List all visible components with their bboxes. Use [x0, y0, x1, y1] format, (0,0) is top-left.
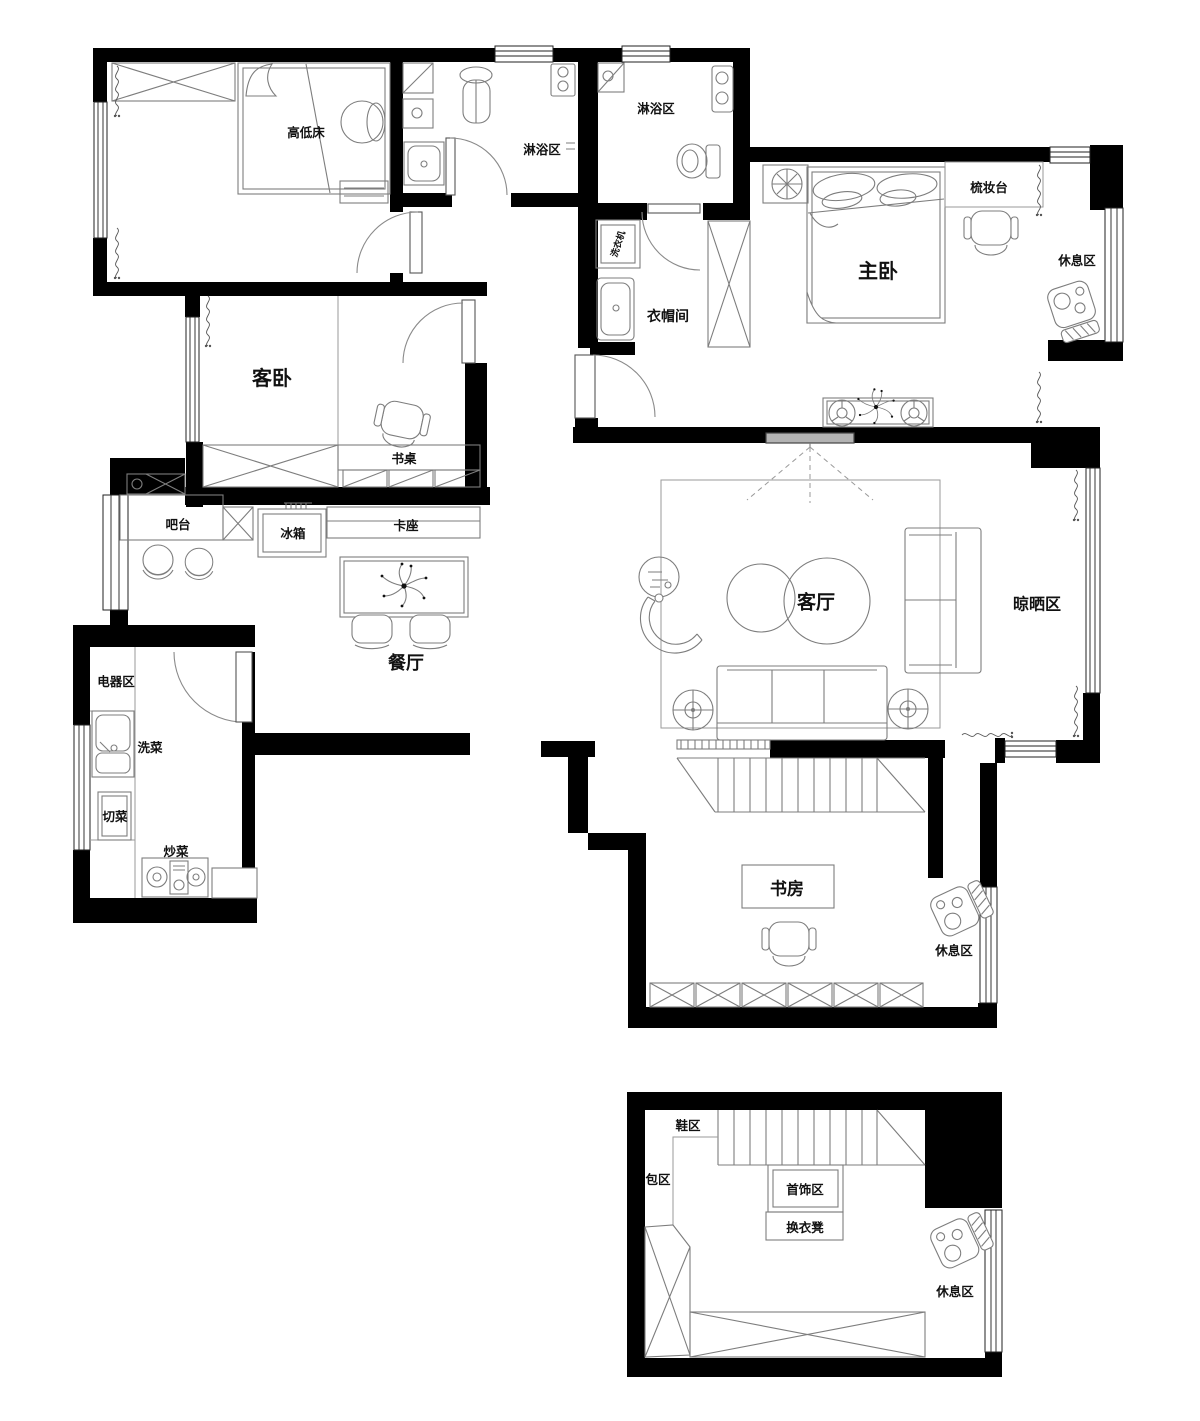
master-rest-area — [1045, 279, 1102, 344]
door-guest-room — [403, 300, 475, 363]
label-bag-area: 包区 — [644, 1172, 671, 1187]
window — [1005, 741, 1056, 757]
label-washing-machine: 洗衣机 — [608, 229, 627, 258]
master-bedroom-furniture — [763, 162, 1043, 427]
label-rest-area-master: 休息区 — [1057, 253, 1096, 268]
door-kids-room — [357, 212, 422, 273]
label-study: 书房 — [770, 879, 804, 899]
study-furniture — [650, 865, 995, 1007]
label-kids-bed: 高低床 — [287, 125, 325, 140]
walls — [73, 48, 1123, 1377]
label-jewelry-area: 首饰区 — [786, 1182, 824, 1197]
window — [1105, 208, 1123, 342]
label-rest-area-closet: 休息区 — [935, 1284, 974, 1299]
label-dressing-table: 梳妆台 — [969, 180, 1008, 195]
window — [1050, 147, 1090, 163]
bathroom-2-fixtures — [598, 63, 733, 178]
label-bar-counter: 吧台 — [165, 517, 190, 532]
label-wash-area: 洗菜 — [137, 740, 163, 755]
living-room-furniture — [639, 433, 981, 740]
kids-room-furniture — [112, 63, 390, 279]
window — [1086, 468, 1100, 693]
window — [103, 495, 128, 610]
guest-room-furniture — [203, 296, 480, 487]
bathroom-1-fixtures — [403, 63, 575, 185]
window — [495, 46, 553, 62]
window — [94, 102, 107, 238]
door-bathroom-2 — [642, 204, 700, 270]
floor-plan-canvas: 高低床 淋浴区 淋浴区 主卧 梳妆台 休息区 客卧 书桌 衣帽间 洗衣机 吧台 … — [0, 0, 1200, 1421]
window — [622, 46, 670, 62]
label-guest-bedroom: 客卧 — [251, 366, 292, 390]
label-desk: 书桌 — [391, 451, 417, 466]
label-appliance-area: 电器区 — [97, 674, 135, 689]
label-drying-area: 晾晒区 — [1013, 595, 1061, 614]
label-shower-area-1: 淋浴区 — [523, 142, 561, 157]
label-changing-stool: 换衣凳 — [786, 1220, 824, 1235]
door-kitchen — [174, 652, 252, 722]
window — [186, 317, 199, 442]
label-booth-seat: 卡座 — [393, 518, 419, 533]
label-dining-room: 餐厅 — [387, 652, 424, 673]
floor-plan-page: 高低床 淋浴区 淋浴区 主卧 梳妆台 休息区 客卧 书桌 衣帽间 洗衣机 吧台 … — [0, 0, 1200, 1421]
label-cook-area: 炒菜 — [163, 844, 189, 859]
label-living-room: 客厅 — [797, 591, 835, 614]
label-cut-area: 切菜 — [102, 809, 128, 824]
label-rest-area-study: 休息区 — [934, 943, 973, 958]
label-fridge: 冰箱 — [280, 526, 306, 541]
label-shower-area-2: 淋浴区 — [637, 101, 675, 116]
label-master-bedroom: 主卧 — [858, 259, 898, 283]
door-corridor — [575, 355, 655, 418]
label-shoe-area: 鞋区 — [675, 1118, 701, 1133]
label-cloakroom: 衣帽间 — [647, 308, 689, 324]
window — [74, 725, 90, 850]
door-bathroom-1 — [446, 138, 507, 195]
